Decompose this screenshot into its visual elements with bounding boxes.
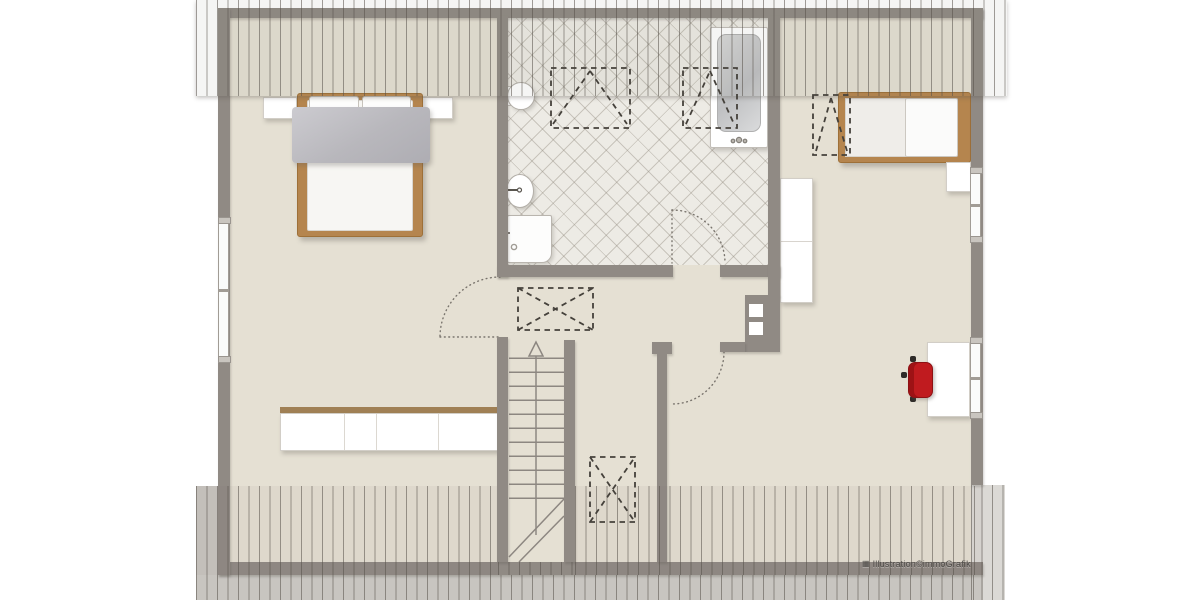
watermark-icon: ▦ [862, 560, 870, 568]
watermark: ▦ Illustration©immoGrafik [862, 557, 992, 571]
skylight-layer [0, 0, 1200, 600]
skylight-corridor [590, 457, 635, 522]
floor-plan-canvas: ▦ Illustration©immoGrafik [0, 0, 1200, 600]
watermark-text: Illustration©immoGrafik [873, 559, 971, 569]
skylight-hall [518, 288, 593, 330]
skylight-bathroom-2 [683, 68, 737, 128]
skylight-bathroom-1 [551, 68, 630, 128]
skylight-right-room [813, 95, 850, 155]
